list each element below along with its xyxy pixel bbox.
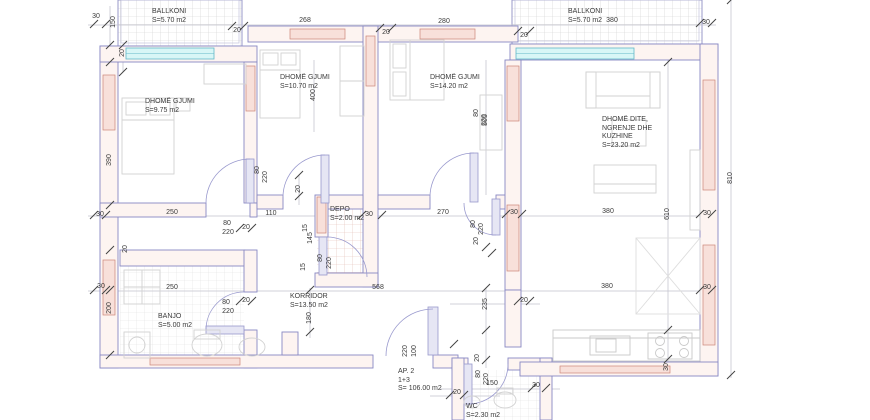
dimension-label: 30 bbox=[356, 211, 382, 219]
dimension-label: 20 bbox=[373, 29, 399, 37]
dimension-label: 20 bbox=[511, 32, 537, 40]
dimension-label: 250 bbox=[159, 209, 185, 217]
dimension-label: 400 bbox=[310, 82, 318, 108]
dimension-label: 30 bbox=[693, 19, 719, 27]
room-area: S=14.20 m2 bbox=[430, 83, 480, 92]
dimension-label: 268 bbox=[292, 17, 318, 25]
room-label-gjumi-left: DHOMË GJUMI S=9.75 m2 bbox=[145, 98, 195, 115]
dimension-label: 30 bbox=[523, 382, 549, 390]
dimension-label: 150 bbox=[479, 380, 505, 388]
dimension-label: 250 bbox=[159, 284, 185, 292]
dimension-label: 20 bbox=[224, 27, 250, 35]
dimension-label: 20 bbox=[295, 176, 303, 202]
dimension-label: 15 bbox=[300, 254, 308, 280]
room-name: DHOMË DITE, bbox=[602, 116, 652, 125]
room-label-ballkoni-right: BALLKONI S=5.70 m2 bbox=[568, 8, 602, 25]
dimension-label: 380 bbox=[594, 283, 620, 291]
dimension-label: 30 bbox=[663, 354, 671, 380]
room-label-wc: WC S=2.30 m2 bbox=[466, 403, 500, 420]
dimension-label: 80 bbox=[473, 100, 481, 126]
room-label-banjo: BANJO S=5.00 m2 bbox=[158, 313, 192, 330]
room-area: S=10.70 m2 bbox=[280, 83, 330, 92]
dimension-label: 220 bbox=[326, 250, 334, 276]
apartment-label: AP. 2 1+3 S= 106.00 m2 bbox=[398, 368, 442, 394]
room-name: WC bbox=[466, 403, 500, 412]
room-label-dhome-dite: DHOMË DITE, NGRENJE DHE KUZHINE S=23.20 … bbox=[602, 116, 652, 150]
dimension-label: 30 bbox=[88, 283, 114, 291]
dimension-label: 220 bbox=[215, 308, 241, 316]
dimension-label: 20 bbox=[511, 297, 537, 305]
dimension-label: 100 bbox=[411, 338, 419, 364]
dimension-label: 30 bbox=[501, 209, 527, 217]
dimension-label: 380 bbox=[599, 17, 625, 25]
dimension-label: 30 bbox=[694, 284, 720, 292]
room-area: S=23.20 m2 bbox=[602, 142, 652, 151]
apartment-layout-code: 1+3 bbox=[398, 377, 442, 386]
room-area: S=5.70 m2 bbox=[152, 17, 186, 26]
room-name: BALLKONI bbox=[152, 8, 186, 17]
room-area: S=2.30 m2 bbox=[466, 412, 500, 420]
dimension-label: 180 bbox=[306, 305, 314, 331]
dimension-label: 280 bbox=[431, 18, 457, 26]
dimension-label: 220 bbox=[262, 164, 270, 190]
room-name: NGRENJE DHE bbox=[602, 125, 652, 134]
room-name: DHOMË GJUMI bbox=[280, 74, 330, 83]
dimension-label: 20 bbox=[473, 228, 481, 254]
dimension-label: 235 bbox=[482, 291, 490, 317]
dimension-label: 145 bbox=[307, 225, 315, 251]
room-name: BALLKONI bbox=[568, 8, 602, 17]
dimension-label: 110 bbox=[258, 210, 284, 218]
dimension-label: 30 bbox=[87, 211, 113, 219]
dimension-label: 610 bbox=[664, 201, 672, 227]
room-label-gjumi-right: DHOMË GJUMI S=14.20 m2 bbox=[430, 74, 480, 91]
dimension-label: 30 bbox=[694, 210, 720, 218]
room-name: DHOMË GJUMI bbox=[145, 98, 195, 107]
dimension-label: 390 bbox=[106, 147, 114, 173]
dimension-label: 20 bbox=[122, 236, 130, 262]
dimension-label: 150 bbox=[110, 9, 118, 35]
dimension-label: 568 bbox=[365, 284, 391, 292]
dimension-label: 20 bbox=[444, 389, 470, 397]
dimension-label: 200 bbox=[106, 295, 114, 321]
room-label-gjumi-mid: DHOMË GJUMI S=10.70 m2 bbox=[280, 74, 330, 91]
room-area: S=9.75 m2 bbox=[145, 107, 195, 116]
room-name: KUZHINE bbox=[602, 133, 652, 142]
apartment-number: AP. 2 bbox=[398, 368, 442, 377]
dimension-label: 220 bbox=[481, 107, 489, 133]
dimension-label: 80 bbox=[254, 157, 262, 183]
room-name: BANJO bbox=[158, 313, 192, 322]
floor-plan: BALLKONI S=5.70 m2 BALLKONI S=5.70 m2 DH… bbox=[0, 0, 870, 420]
dimension-label: 20 bbox=[233, 224, 259, 232]
apartment-area: S= 106.00 m2 bbox=[398, 385, 442, 394]
dimension-label: 30 bbox=[83, 13, 109, 21]
dimension-label: 220 bbox=[483, 366, 491, 392]
room-area: S=5.70 m2 bbox=[568, 17, 602, 26]
dimension-label: 220 bbox=[402, 338, 410, 364]
room-name: KORRIDOR bbox=[290, 293, 328, 302]
dimension-label: 380 bbox=[595, 208, 621, 216]
dimension-label: 810 bbox=[727, 165, 735, 191]
room-name: DHOMË GJUMI bbox=[430, 74, 480, 83]
room-area: S=5.00 m2 bbox=[158, 322, 192, 331]
dimension-label: 80 bbox=[317, 245, 325, 271]
dimension-label: 20 bbox=[233, 297, 259, 305]
room-label-ballkoni-left: BALLKONI S=5.70 m2 bbox=[152, 8, 186, 25]
windows bbox=[126, 48, 634, 59]
dimension-label: 20 bbox=[119, 40, 127, 66]
dimension-label: 270 bbox=[430, 209, 456, 217]
